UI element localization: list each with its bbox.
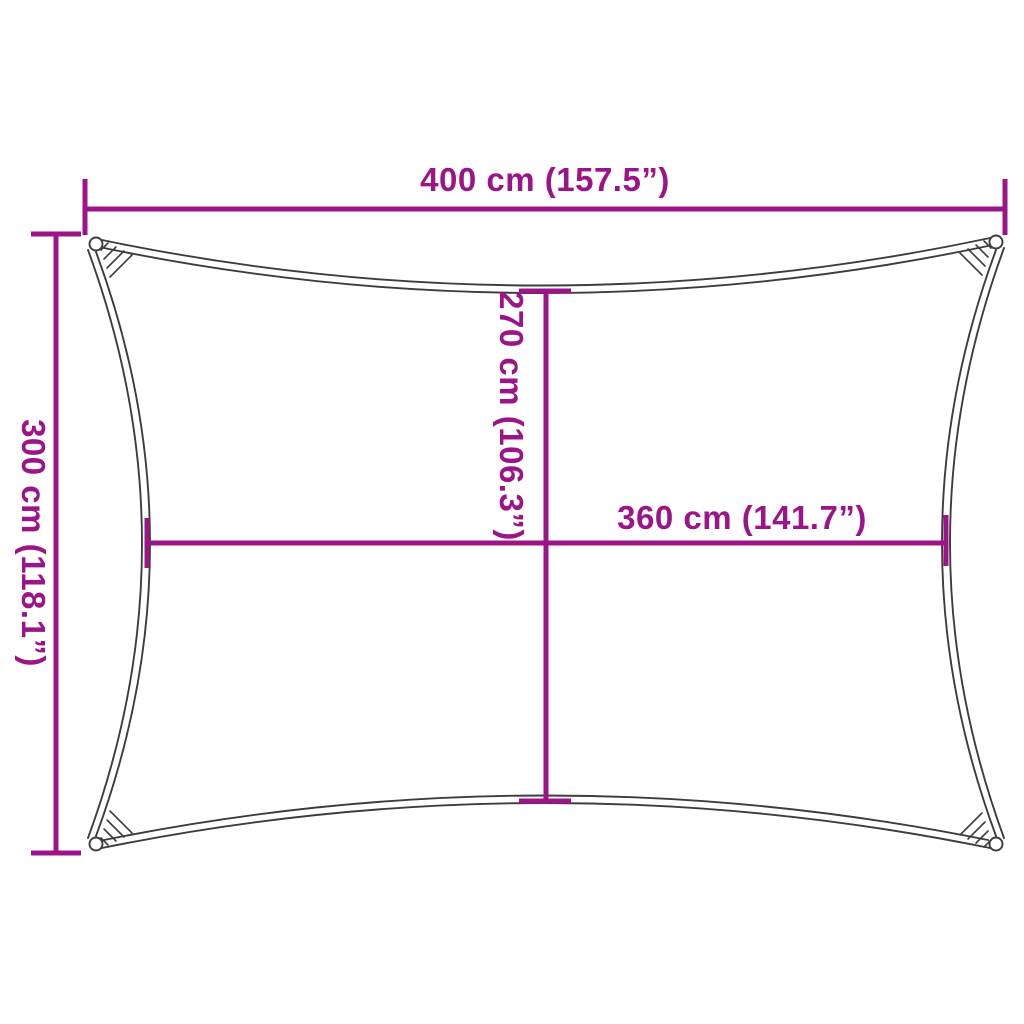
sail-bottom-edge-outer-line	[102, 803, 990, 848]
dimension-labels: 400 cm (157.5”) 300 cm (118.1”) 270 cm (…	[15, 161, 867, 667]
sail-top-edge-outer-line	[102, 238, 990, 286]
diagram-canvas: 400 cm (157.5”) 300 cm (118.1”) 270 cm (…	[0, 0, 1024, 1024]
dimension-label-inner-width: 360 cm (141.7”)	[617, 499, 867, 536]
sail-right-edge-outer-line	[950, 248, 1004, 838]
dimension-label-left-height: 300 cm (118.1”)	[15, 419, 52, 667]
corner-grommet-bottom-right-icon	[960, 813, 1003, 851]
shade-sail-dimension-diagram: 400 cm (157.5”) 300 cm (118.1”) 270 cm (…	[0, 0, 1024, 1024]
dimension-label-top-width: 400 cm (157.5”)	[420, 161, 670, 198]
sail-left-edge-outer-line	[88, 250, 142, 838]
dimension-label-inner-height: 270 cm (106.3”)	[493, 291, 530, 541]
